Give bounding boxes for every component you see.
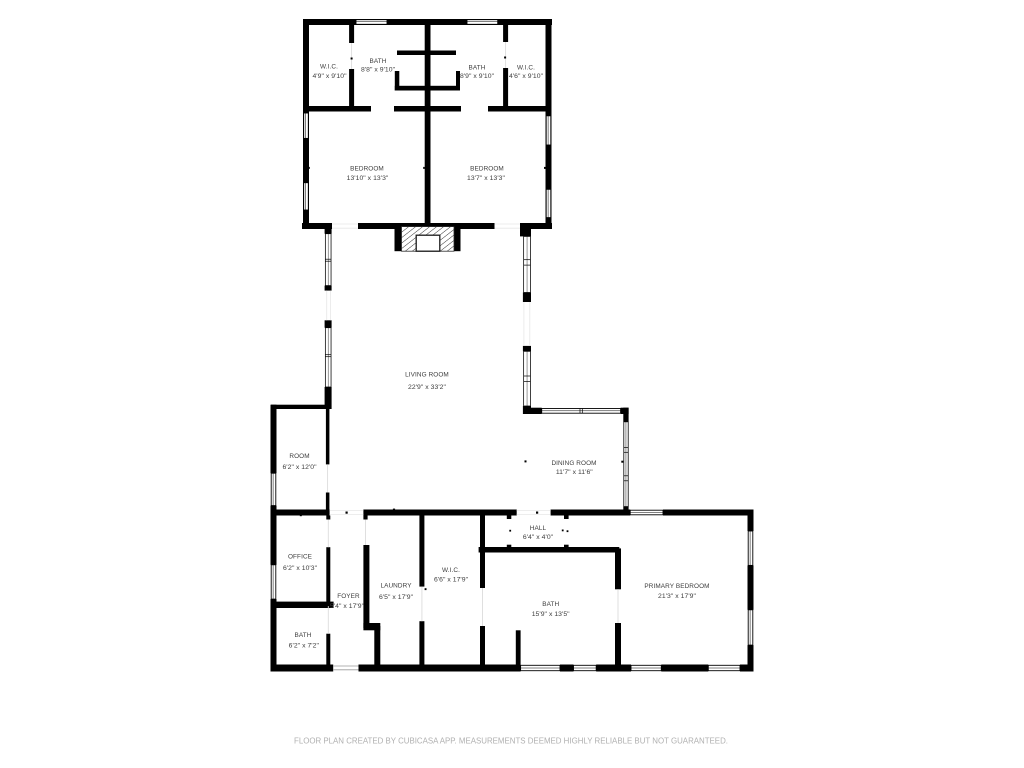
svg-text:BATH: BATH (469, 65, 486, 72)
svg-text:8'8" x 9'10": 8'8" x 9'10" (361, 67, 396, 74)
svg-text:6'2" x 7'2": 6'2" x 7'2" (289, 642, 320, 649)
svg-text:FLOOR PLAN CREATED BY CUBICASA: FLOOR PLAN CREATED BY CUBICASA APP. MEAS… (294, 737, 728, 746)
svg-text:13'7" x 13'3": 13'7" x 13'3" (467, 175, 505, 182)
svg-text:W.I.C.: W.I.C. (442, 567, 460, 574)
svg-text:22'9" x 33'2": 22'9" x 33'2" (408, 384, 446, 391)
svg-text:FOYER: FOYER (337, 593, 360, 600)
svg-text:BATH: BATH (370, 58, 387, 65)
svg-text:6'2" x 12'0": 6'2" x 12'0" (282, 464, 317, 471)
svg-text:DINING ROOM: DINING ROOM (551, 460, 596, 467)
svg-text:OFFICE: OFFICE (288, 554, 312, 561)
svg-text:BATH: BATH (295, 632, 312, 639)
svg-text:BEDROOM: BEDROOM (470, 166, 504, 173)
svg-text:21'3" x 17'9": 21'3" x 17'9" (658, 593, 696, 600)
svg-text:HALL: HALL (530, 525, 547, 532)
svg-text:ROOM: ROOM (289, 453, 309, 460)
svg-text:BATH: BATH (542, 601, 559, 608)
svg-text:5'4" x 17'9": 5'4" x 17'9" (330, 603, 365, 610)
svg-text:PRIMARY BEDROOM: PRIMARY BEDROOM (644, 583, 709, 590)
svg-text:13'10" x 13'3": 13'10" x 13'3" (347, 175, 389, 182)
svg-text:W.I.C.: W.I.C. (517, 65, 535, 72)
svg-text:6'2" x 10'3": 6'2" x 10'3" (283, 565, 318, 572)
svg-text:LAUNDRY: LAUNDRY (380, 583, 412, 590)
svg-text:W.I.C.: W.I.C. (320, 64, 338, 71)
svg-text:11'7" x 11'6": 11'7" x 11'6" (556, 469, 593, 476)
svg-text:BEDROOM: BEDROOM (350, 166, 384, 173)
svg-text:4'6" x 9'10": 4'6" x 9'10" (509, 73, 544, 80)
svg-text:4'9" x 9'10": 4'9" x 9'10" (312, 73, 347, 80)
svg-text:LIVING ROOM: LIVING ROOM (405, 372, 449, 379)
svg-text:6'5" x 17'9": 6'5" x 17'9" (379, 594, 414, 601)
svg-text:6'4" x 4'0": 6'4" x 4'0" (523, 534, 554, 541)
svg-text:15'9" x 13'5": 15'9" x 13'5" (532, 611, 570, 618)
svg-text:6'6" x 17'9": 6'6" x 17'9" (434, 577, 469, 584)
svg-text:8'9" x 9'10": 8'9" x 9'10" (460, 73, 495, 80)
